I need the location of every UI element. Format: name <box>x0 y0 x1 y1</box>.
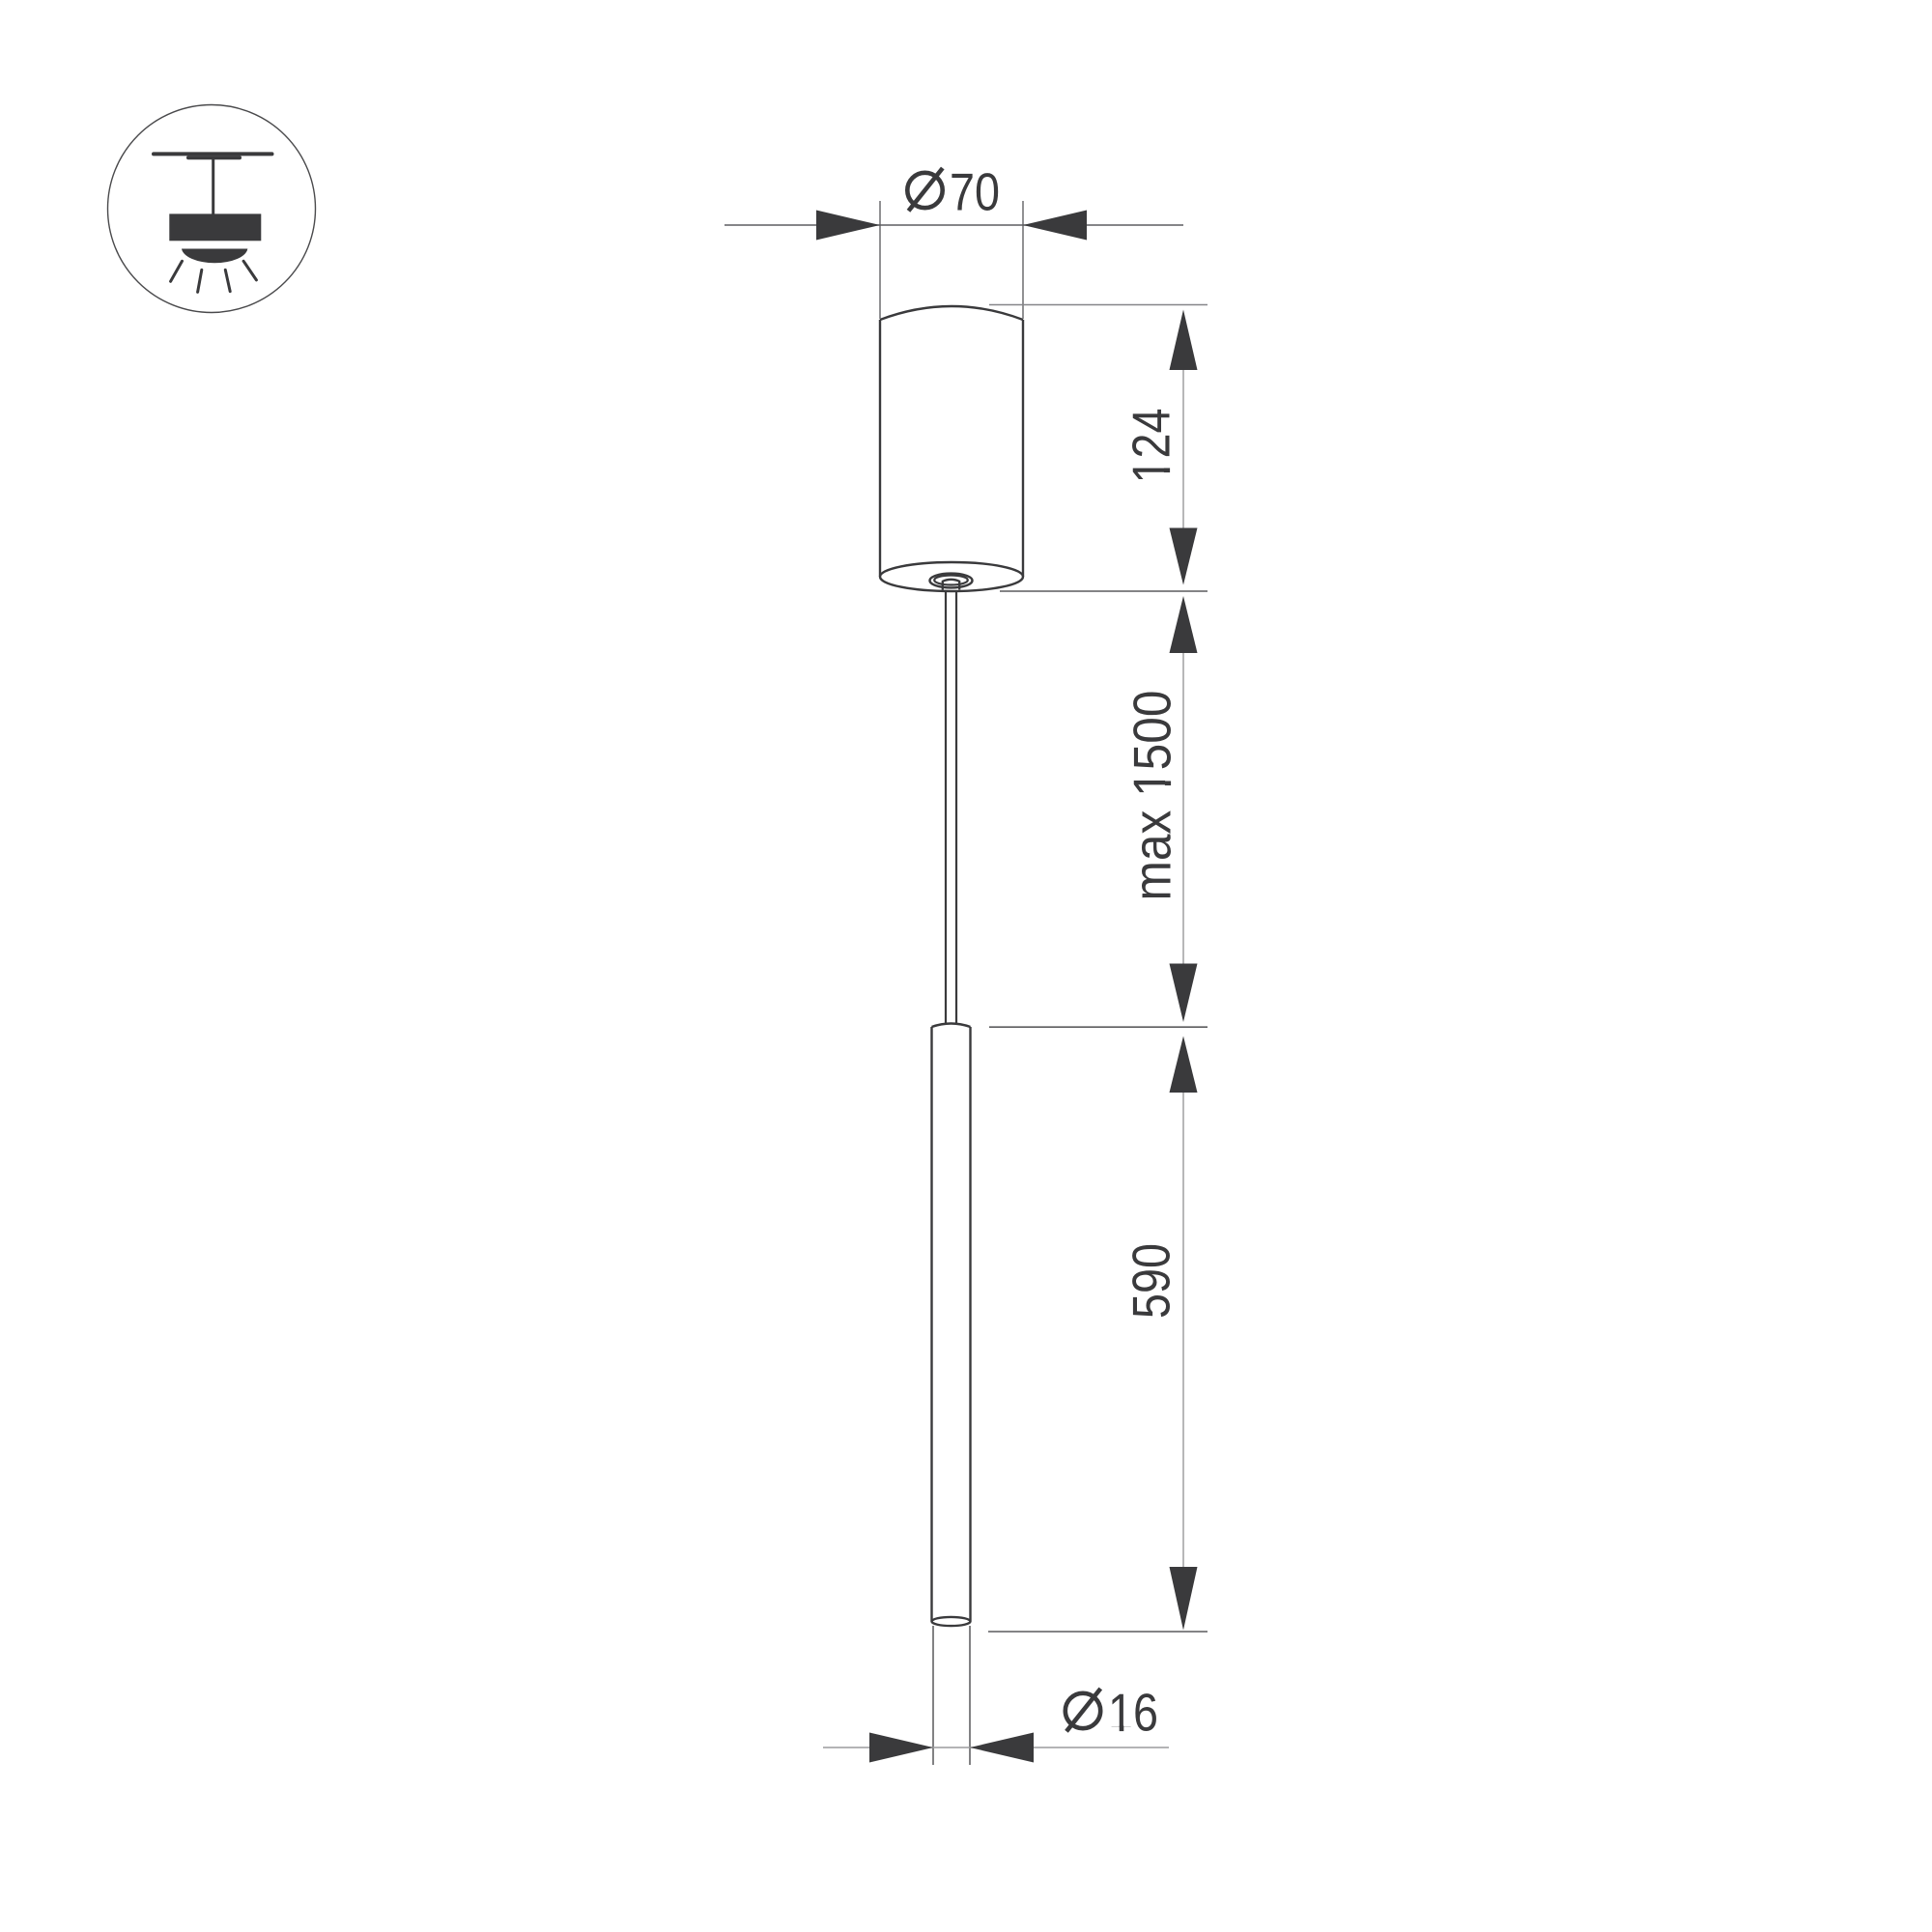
svg-text:70: 70 <box>950 162 1000 222</box>
svg-text:590: 590 <box>1122 1243 1181 1319</box>
svg-text:124: 124 <box>1122 409 1181 484</box>
svg-text:16: 16 <box>1108 1683 1158 1743</box>
svg-text:max 1500: max 1500 <box>1122 691 1182 901</box>
